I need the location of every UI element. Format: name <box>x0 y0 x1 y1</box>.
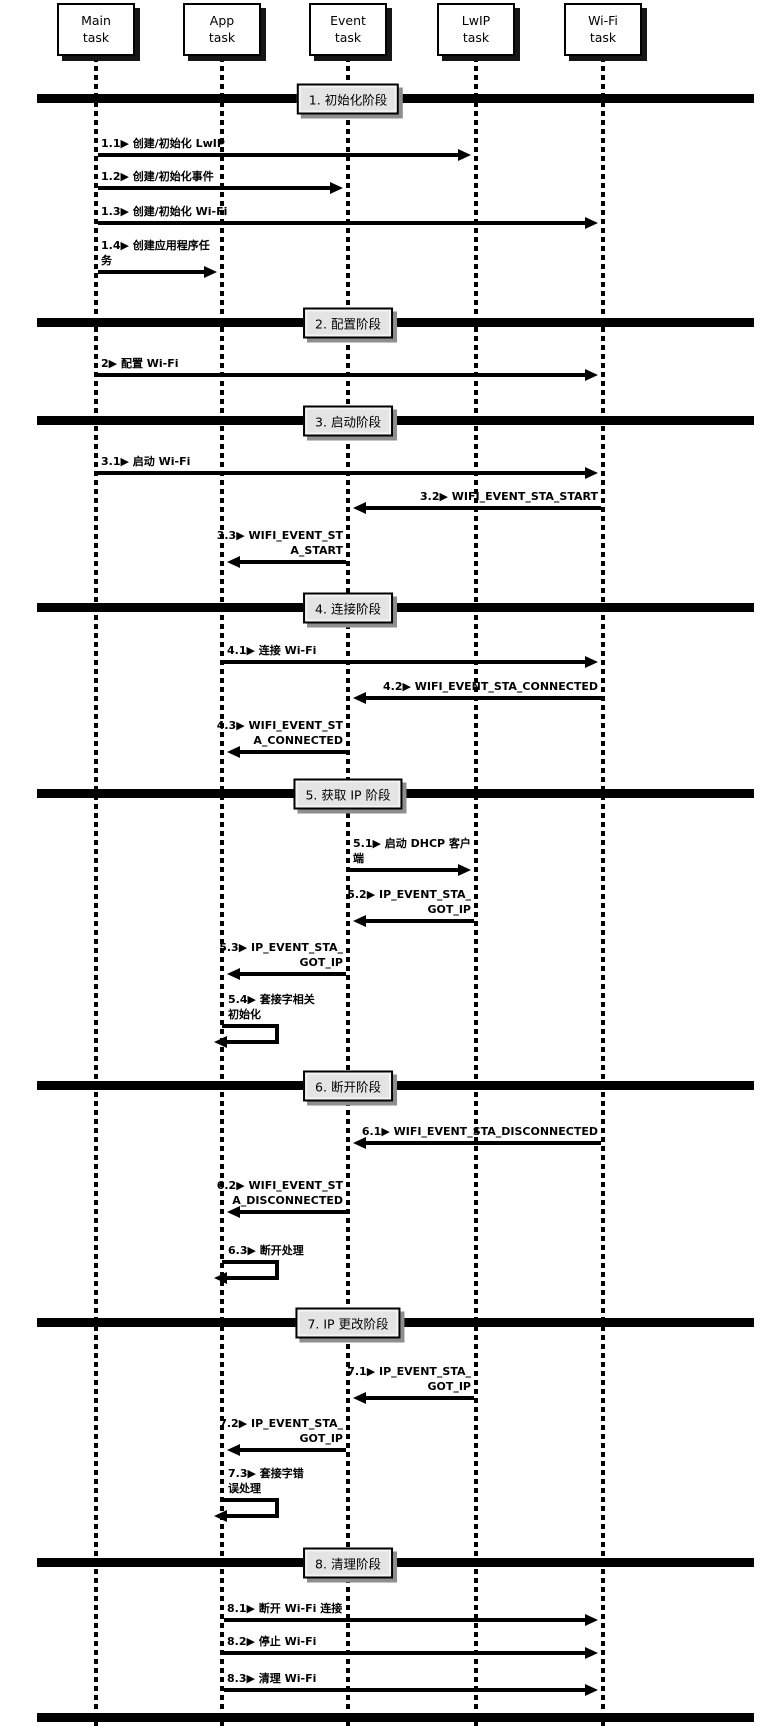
phase-label-7: 7. IP 更改阶段 <box>295 1307 400 1338</box>
message-arrow-7.1 <box>366 1396 474 1400</box>
message-label-5.3: 5.3▶ IP_EVENT_STA_GOT_IP <box>219 940 343 970</box>
arrowhead-6.2 <box>227 1206 240 1218</box>
task-box-label: task <box>209 30 235 47</box>
message-arrow-8.1 <box>224 1618 585 1622</box>
message-label-line: 7.2▶ IP_EVENT_STA_ <box>219 1416 343 1431</box>
message-label-line: 3.1▶ 启动 Wi-Fi <box>101 454 190 469</box>
message-arrow-3.3 <box>240 560 346 564</box>
message-arrow-5.3 <box>240 972 346 976</box>
phase-label-3: 3. 启动阶段 <box>303 405 393 436</box>
message-arrow-6.1 <box>366 1141 601 1145</box>
self-loop-arrowhead-7.3 <box>214 1510 227 1522</box>
task-box-wifi: Wi-Fitask <box>564 3 642 56</box>
self-loop-bottom-6.3 <box>227 1276 279 1280</box>
arrowhead-1.4 <box>204 266 217 278</box>
lifeline-main <box>94 57 98 1726</box>
message-label-line: 3.2▶ WIFI_EVENT_STA_START <box>420 489 598 504</box>
message-label-4.2: 4.2▶ WIFI_EVENT_STA_CONNECTED <box>383 679 598 694</box>
arrowhead-7.1 <box>353 1392 366 1404</box>
self-loop-arrowhead-6.3 <box>214 1272 227 1284</box>
arrowhead-8.2 <box>585 1647 598 1659</box>
task-box-event: Eventtask <box>309 3 387 56</box>
message-label-3.2: 3.2▶ WIFI_EVENT_STA_START <box>420 489 598 504</box>
wifi-sequence-diagram: 1. 初始化阶段2. 配置阶段3. 启动阶段4. 连接阶段5. 获取 IP 阶段… <box>0 0 768 1726</box>
self-loop-top-7.3 <box>222 1498 279 1502</box>
message-label-line: 7.1▶ IP_EVENT_STA_ <box>347 1364 471 1379</box>
message-arrow-4.1 <box>224 660 585 664</box>
arrowhead-6.1 <box>353 1137 366 1149</box>
arrowhead-1.2 <box>330 182 343 194</box>
message-label-1.1: 1.1▶ 创建/初始化 LwIP <box>101 136 225 151</box>
message-arrow-4.2 <box>366 696 601 700</box>
message-arrow-5.2 <box>366 919 474 923</box>
message-label-1.4: 1.4▶ 创建应用程序任务 <box>101 238 210 268</box>
task-box-label: task <box>590 30 616 47</box>
message-label-4.3: 4.3▶ WIFI_EVENT_STA_CONNECTED <box>217 718 343 748</box>
message-arrow-6.2 <box>240 1210 346 1214</box>
message-arrow-8.2 <box>224 1651 585 1655</box>
message-label-line: 4.1▶ 连接 Wi-Fi <box>227 643 316 658</box>
phase-bar-6 <box>37 1081 754 1090</box>
message-label-line: 1.3▶ 创建/初始化 Wi-Fi <box>101 204 227 219</box>
message-label-1.2: 1.2▶ 创建/初始化事件 <box>101 169 214 184</box>
message-arrow-4.3 <box>240 750 346 754</box>
message-label-8.3: 8.3▶ 清理 Wi-Fi <box>227 1671 316 1686</box>
message-arrow-1.3 <box>98 221 585 225</box>
phase-bar-8 <box>37 1558 754 1567</box>
message-label-line: 6.1▶ WIFI_EVENT_STA_DISCONNECTED <box>362 1124 598 1139</box>
phase-label-5: 5. 获取 IP 阶段 <box>293 778 402 809</box>
bottom-bar <box>37 1713 754 1722</box>
message-label-6.2: 6.2▶ WIFI_EVENT_STA_DISCONNECTED <box>217 1178 343 1208</box>
message-label-line: 1.4▶ 创建应用程序任 <box>101 238 210 253</box>
phase-label-8: 8. 清理阶段 <box>303 1547 393 1578</box>
message-label-3.3: 3.3▶ WIFI_EVENT_STA_START <box>217 528 343 558</box>
task-box-label: Event <box>330 13 366 30</box>
message-label-5.2: 5.2▶ IP_EVENT_STA_GOT_IP <box>347 887 471 917</box>
message-label-8.1: 8.1▶ 断开 Wi-Fi 连接 <box>227 1601 342 1616</box>
self-loop-top-6.3 <box>222 1260 279 1264</box>
arrowhead-1.3 <box>585 217 598 229</box>
lifeline-wifi <box>601 57 605 1726</box>
phase-label-1: 1. 初始化阶段 <box>297 83 399 114</box>
message-label-line: 1.1▶ 创建/初始化 LwIP <box>101 136 225 151</box>
message-label-line: 5.3▶ IP_EVENT_STA_ <box>219 940 343 955</box>
arrowhead-8.1 <box>585 1614 598 1626</box>
message-arrow-1.4 <box>98 270 204 274</box>
message-label-6.1: 6.1▶ WIFI_EVENT_STA_DISCONNECTED <box>362 1124 598 1139</box>
arrowhead-8.3 <box>585 1684 598 1696</box>
message-arrow-3.2 <box>366 506 601 510</box>
task-box-label: task <box>83 30 109 47</box>
lifeline-app <box>220 57 224 1726</box>
message-label-line: 2▶ 配置 Wi-Fi <box>101 356 179 371</box>
message-label-1.3: 1.3▶ 创建/初始化 Wi-Fi <box>101 204 227 219</box>
message-arrow-1.1 <box>98 153 458 157</box>
arrowhead-3.2 <box>353 502 366 514</box>
message-label-line: 初始化 <box>228 1007 315 1022</box>
task-box-label: Wi-Fi <box>588 13 618 30</box>
message-label-line: 3.3▶ WIFI_EVENT_ST <box>217 528 343 543</box>
arrowhead-5.3 <box>227 968 240 980</box>
arrowhead-4.3 <box>227 746 240 758</box>
message-label-7.2: 7.2▶ IP_EVENT_STA_GOT_IP <box>219 1416 343 1446</box>
phase-label-6: 6. 断开阶段 <box>303 1070 393 1101</box>
phase-bar-2 <box>37 318 754 327</box>
task-box-label: task <box>335 30 361 47</box>
phase-label-4: 4. 连接阶段 <box>303 592 393 623</box>
message-label-8.2: 8.2▶ 停止 Wi-Fi <box>227 1634 316 1649</box>
message-label-line: 5.1▶ 启动 DHCP 客户 <box>353 836 471 851</box>
message-label-5.4: 5.4▶ 套接字相关初始化 <box>228 992 315 1022</box>
message-label-line: 4.2▶ WIFI_EVENT_STA_CONNECTED <box>383 679 598 694</box>
self-loop-bottom-7.3 <box>227 1514 279 1518</box>
arrowhead-7.2 <box>227 1444 240 1456</box>
message-label-line: 端 <box>353 851 471 866</box>
message-label-line: 6.3▶ 断开处理 <box>228 1243 304 1258</box>
message-label-line: 误处理 <box>228 1481 304 1496</box>
message-arrow-5.1 <box>350 868 458 872</box>
message-label-line: 8.3▶ 清理 Wi-Fi <box>227 1671 316 1686</box>
message-label-line: 1.2▶ 创建/初始化事件 <box>101 169 214 184</box>
message-label-line: 6.2▶ WIFI_EVENT_ST <box>217 1178 343 1193</box>
arrowhead-1.1 <box>458 149 471 161</box>
task-box-main: Maintask <box>57 3 135 56</box>
arrowhead-5.1 <box>458 864 471 876</box>
message-label-3.1: 3.1▶ 启动 Wi-Fi <box>101 454 190 469</box>
arrowhead-2 <box>585 369 598 381</box>
arrowhead-3.1 <box>585 467 598 479</box>
message-arrow-2 <box>98 373 585 377</box>
message-label-line: 务 <box>101 253 210 268</box>
message-label-line: 4.3▶ WIFI_EVENT_ST <box>217 718 343 733</box>
arrowhead-4.1 <box>585 656 598 668</box>
phase-bar-4 <box>37 603 754 612</box>
self-loop-bottom-5.4 <box>227 1040 279 1044</box>
task-box-label: task <box>463 30 489 47</box>
message-label-line: 5.4▶ 套接字相关 <box>228 992 315 1007</box>
message-label-line: 7.3▶ 套接字错 <box>228 1466 304 1481</box>
message-label-4.1: 4.1▶ 连接 Wi-Fi <box>227 643 316 658</box>
message-arrow-8.3 <box>224 1688 585 1692</box>
phase-label-2: 2. 配置阶段 <box>303 307 393 338</box>
arrowhead-3.3 <box>227 556 240 568</box>
message-label-2: 2▶ 配置 Wi-Fi <box>101 356 179 371</box>
arrowhead-5.2 <box>353 915 366 927</box>
message-label-7.1: 7.1▶ IP_EVENT_STA_GOT_IP <box>347 1364 471 1394</box>
message-label-5.1: 5.1▶ 启动 DHCP 客户端 <box>353 836 471 866</box>
arrowhead-4.2 <box>353 692 366 704</box>
task-box-label: Main <box>81 13 111 30</box>
message-arrow-1.2 <box>98 186 330 190</box>
task-box-label: App <box>210 13 234 30</box>
phase-bar-3 <box>37 416 754 425</box>
message-arrow-3.1 <box>98 471 585 475</box>
message-label-line: 8.1▶ 断开 Wi-Fi 连接 <box>227 1601 342 1616</box>
message-label-line: 8.2▶ 停止 Wi-Fi <box>227 1634 316 1649</box>
self-loop-top-5.4 <box>222 1024 279 1028</box>
message-label-7.3: 7.3▶ 套接字错误处理 <box>228 1466 304 1496</box>
self-loop-arrowhead-5.4 <box>214 1036 227 1048</box>
task-box-lwip: LwIPtask <box>437 3 515 56</box>
message-arrow-7.2 <box>240 1448 346 1452</box>
message-label-6.3: 6.3▶ 断开处理 <box>228 1243 304 1258</box>
message-label-line: 5.2▶ IP_EVENT_STA_ <box>347 887 471 902</box>
task-box-label: LwIP <box>462 13 490 30</box>
lifeline-lwip <box>474 57 478 1726</box>
task-box-app: Apptask <box>183 3 261 56</box>
